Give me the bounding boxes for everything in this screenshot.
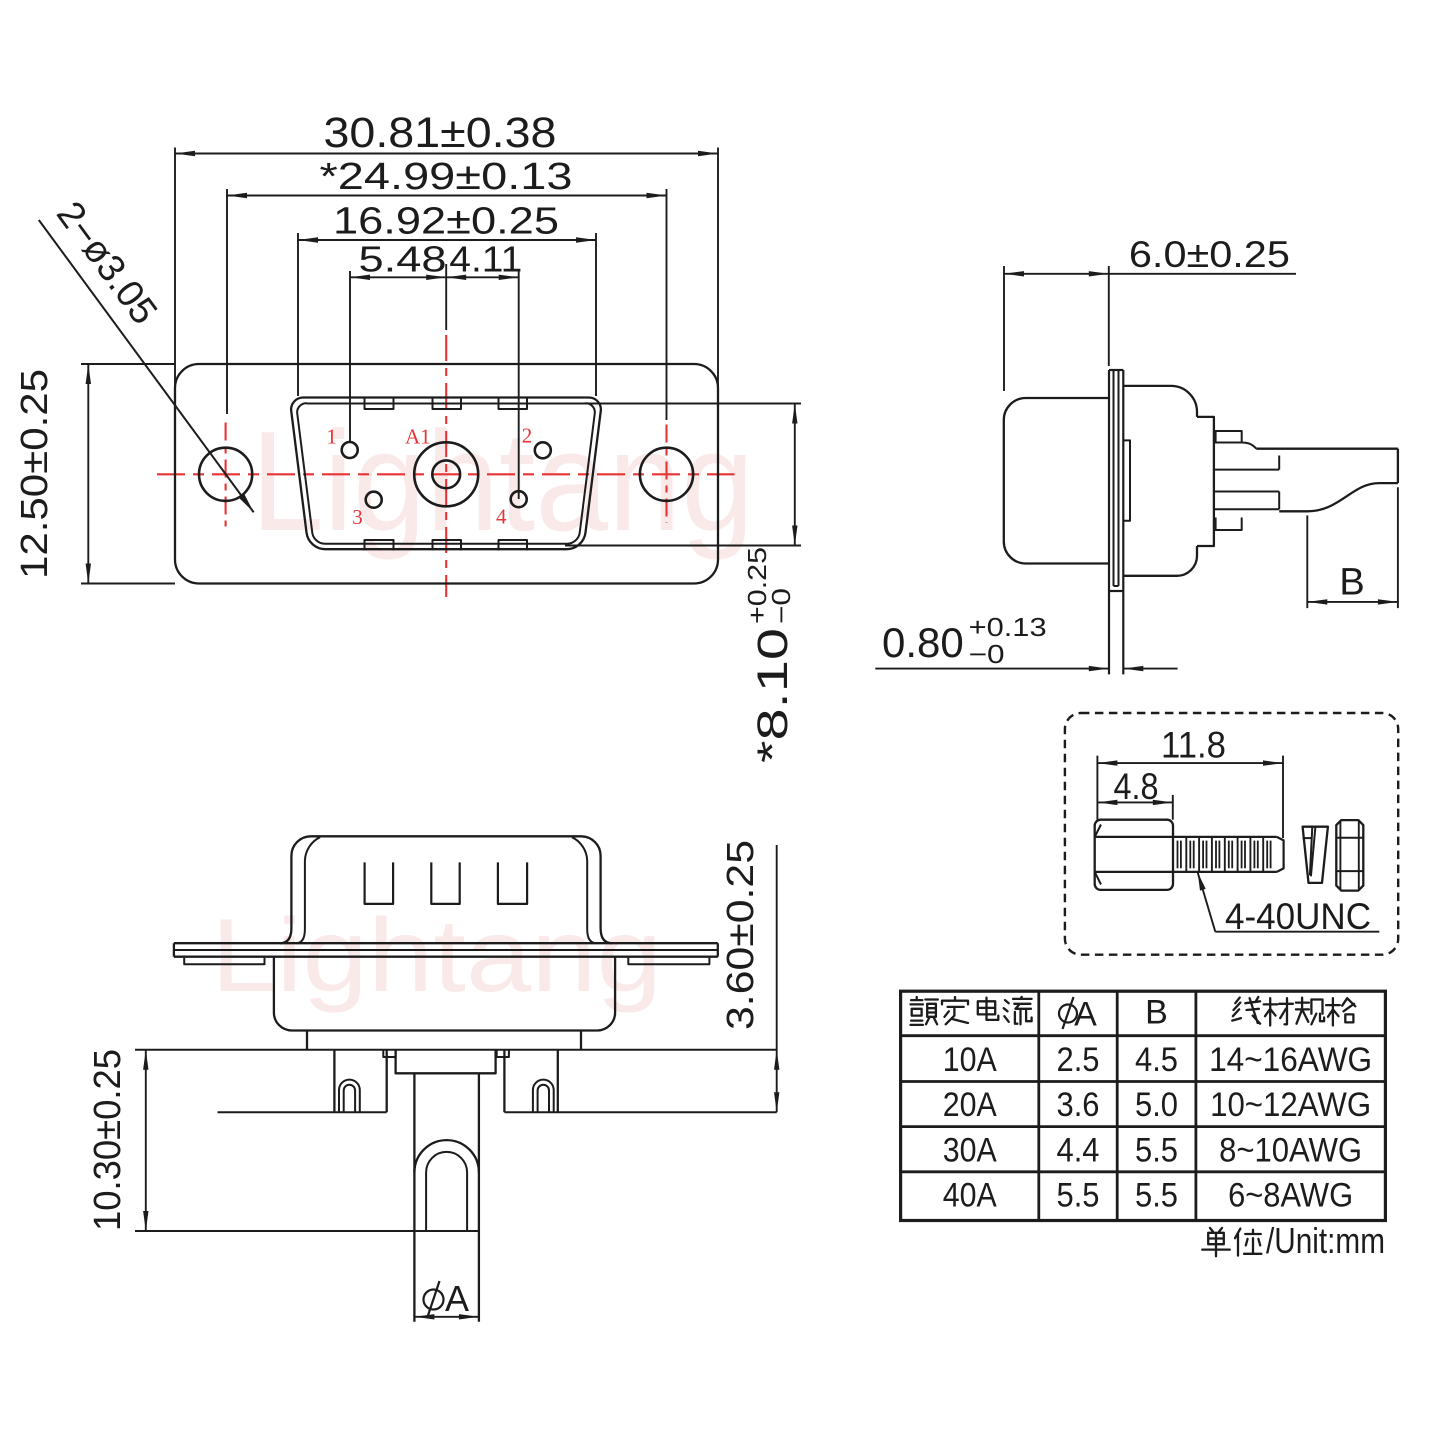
svg-text:11.8: 11.8 bbox=[1161, 725, 1226, 766]
svg-text:5.48: 5.48 bbox=[359, 239, 447, 280]
svg-text:*8.10: *8.10 bbox=[749, 628, 797, 763]
svg-text:3.60±0.25: 3.60±0.25 bbox=[720, 840, 762, 1030]
svg-text:4.4: 4.4 bbox=[1057, 1131, 1100, 1169]
svg-text:12.50±0.25: 12.50±0.25 bbox=[14, 369, 56, 579]
svg-text:2.5: 2.5 bbox=[1057, 1041, 1100, 1079]
svg-text:5.0: 5.0 bbox=[1135, 1086, 1178, 1124]
svg-text:4.8: 4.8 bbox=[1114, 766, 1159, 807]
svg-text:10.30±0.25: 10.30±0.25 bbox=[87, 1049, 129, 1231]
svg-text:*24.99±0.13: *24.99±0.13 bbox=[320, 156, 573, 198]
svg-text:+0.13: +0.13 bbox=[969, 612, 1047, 642]
svg-text:20A: 20A bbox=[943, 1086, 997, 1124]
svg-text:1: 1 bbox=[326, 425, 337, 449]
svg-text:2: 2 bbox=[522, 424, 533, 448]
svg-text:B: B bbox=[1145, 994, 1168, 1032]
svg-text:A: A bbox=[1074, 996, 1097, 1034]
svg-text:5.5: 5.5 bbox=[1135, 1131, 1178, 1169]
svg-text:3: 3 bbox=[352, 505, 363, 529]
svg-text:6~8AWG: 6~8AWG bbox=[1228, 1177, 1353, 1215]
svg-text:4: 4 bbox=[496, 504, 507, 528]
svg-text:/Unit:mm: /Unit:mm bbox=[1266, 1220, 1385, 1261]
svg-text:−0: −0 bbox=[969, 639, 1005, 669]
svg-text:A1: A1 bbox=[405, 425, 431, 449]
svg-text:5.5: 5.5 bbox=[1135, 1177, 1178, 1215]
svg-text:B: B bbox=[1339, 562, 1364, 604]
svg-text:30.81±0.38: 30.81±0.38 bbox=[324, 109, 557, 157]
svg-text:4.11: 4.11 bbox=[449, 239, 522, 280]
svg-text:5.5: 5.5 bbox=[1057, 1177, 1100, 1215]
svg-text:A: A bbox=[445, 1278, 469, 1319]
svg-text:8~10AWG: 8~10AWG bbox=[1219, 1131, 1362, 1169]
svg-text:4-40UNC: 4-40UNC bbox=[1225, 896, 1371, 937]
svg-text:4.5: 4.5 bbox=[1135, 1041, 1178, 1079]
svg-text:16.92±0.25: 16.92±0.25 bbox=[333, 201, 559, 243]
svg-text:0.80: 0.80 bbox=[882, 619, 964, 666]
svg-text:−0: −0 bbox=[766, 588, 796, 624]
svg-text:14~16AWG: 14~16AWG bbox=[1209, 1041, 1372, 1079]
svg-text:10~12AWG: 10~12AWG bbox=[1210, 1086, 1371, 1124]
svg-text:3.6: 3.6 bbox=[1057, 1086, 1100, 1124]
svg-text:30A: 30A bbox=[943, 1131, 997, 1169]
svg-text:40A: 40A bbox=[943, 1177, 997, 1215]
svg-text:10A: 10A bbox=[943, 1041, 997, 1079]
svg-text:6.0±0.25: 6.0±0.25 bbox=[1129, 234, 1290, 275]
